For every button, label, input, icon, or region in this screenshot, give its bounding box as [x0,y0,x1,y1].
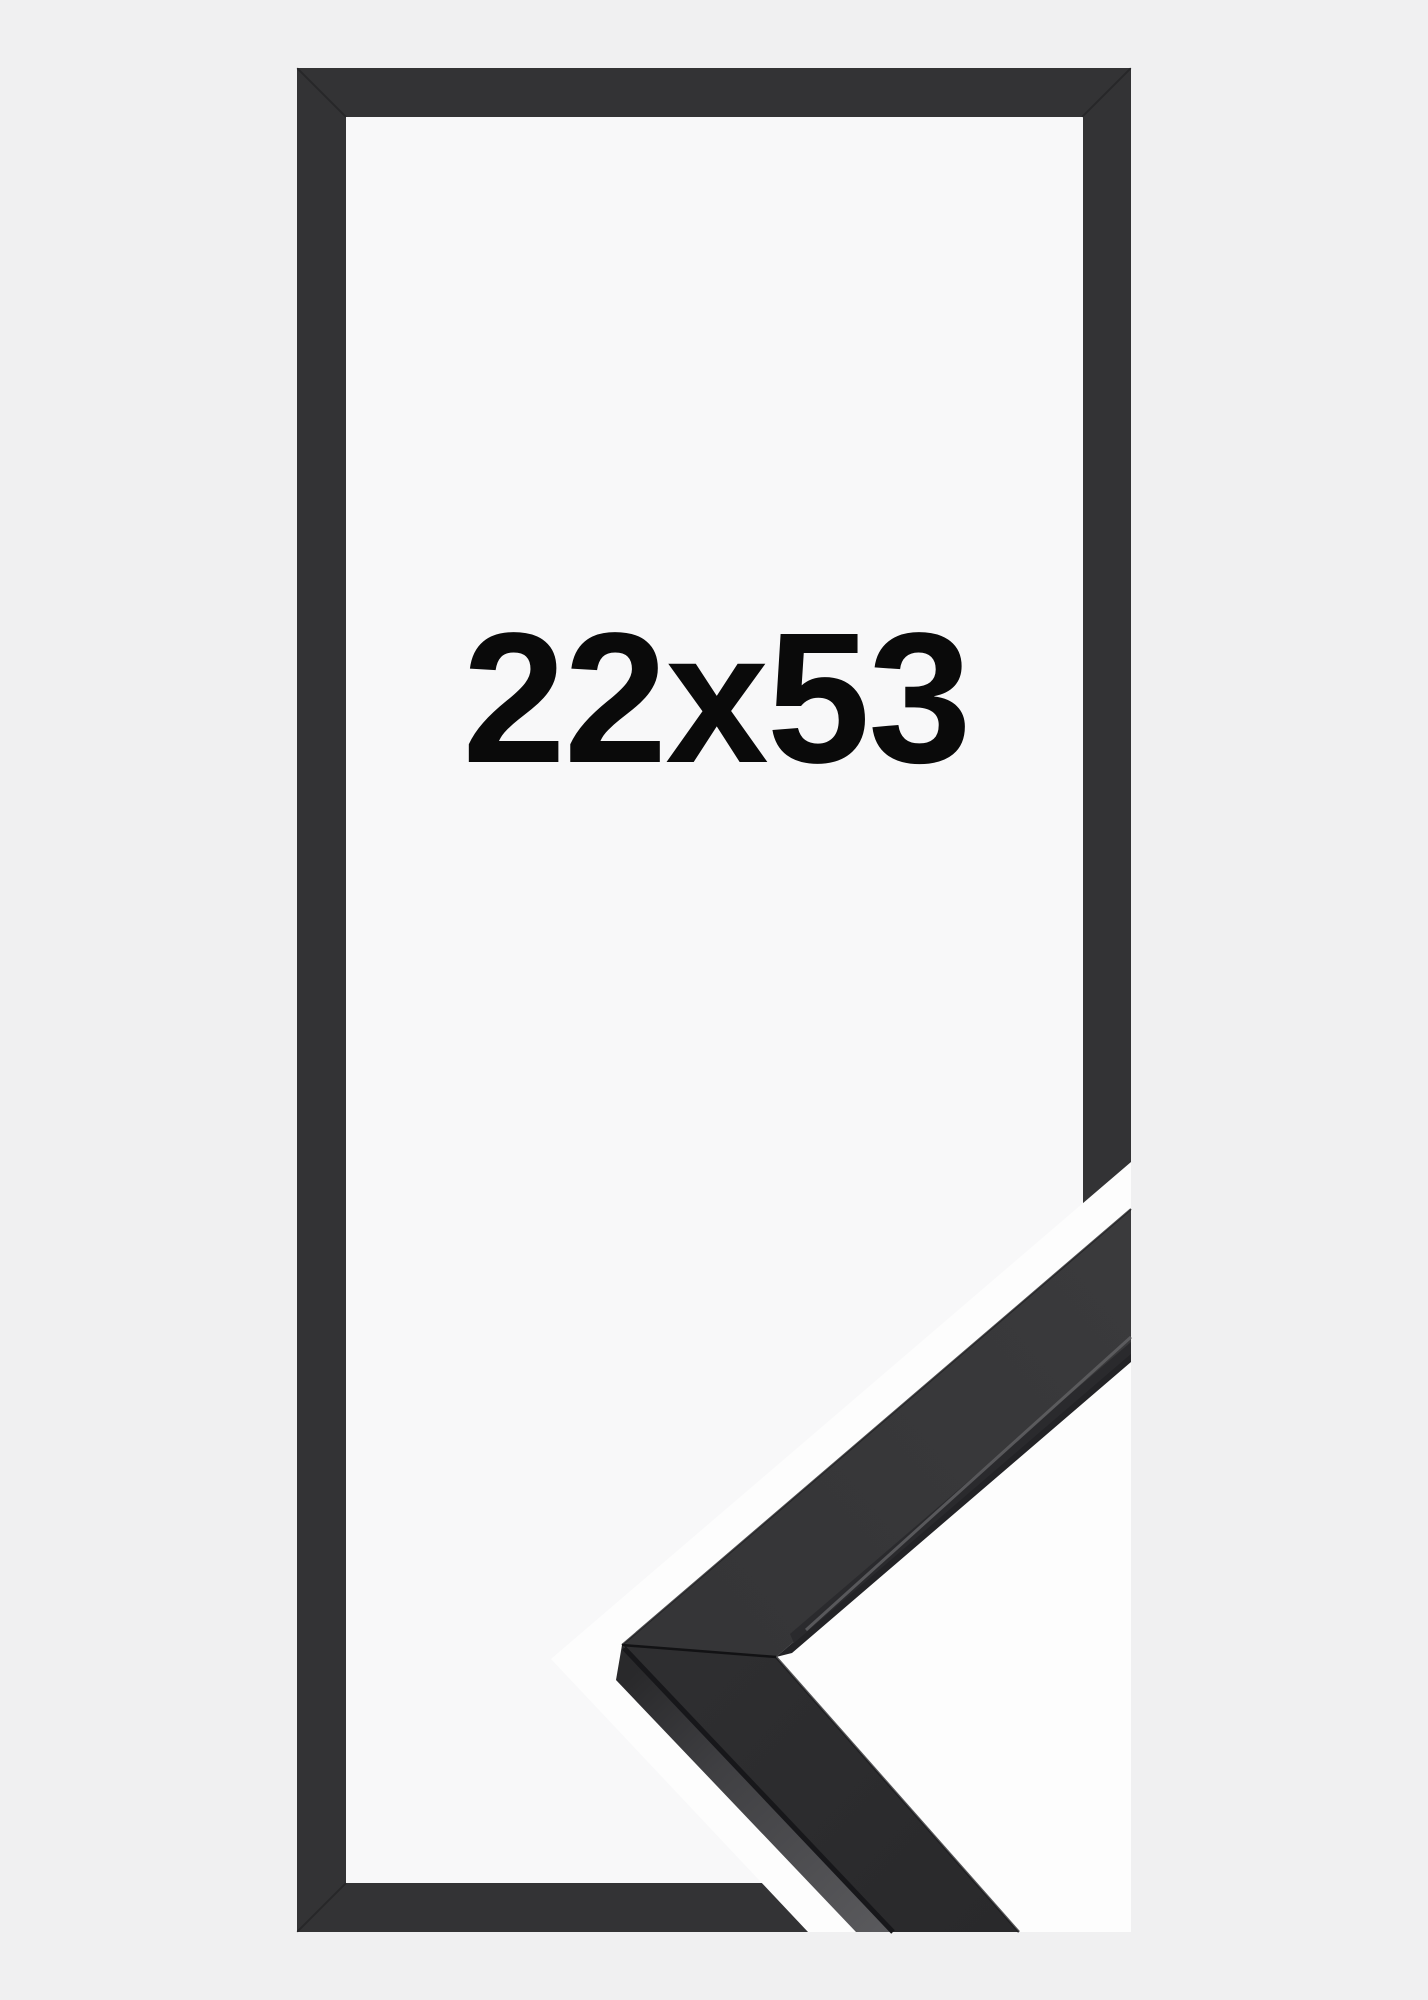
size-label: 22x53 [462,595,969,802]
frame-product-image: 22x53 [0,0,1428,2000]
frame-product-graphic: 22x53 [0,0,1428,2000]
